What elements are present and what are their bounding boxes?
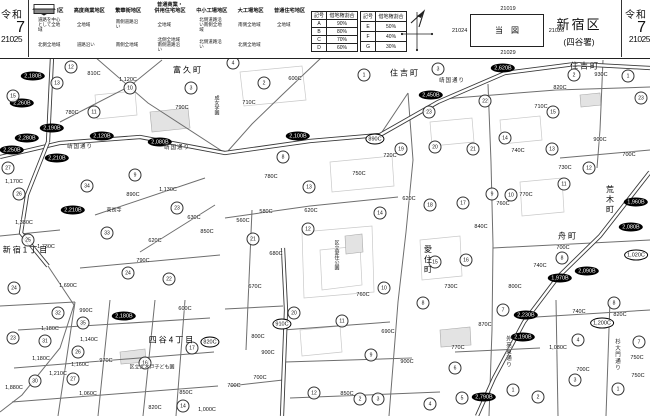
block-number: 12: [583, 162, 596, 175]
block-number: 21: [247, 233, 260, 246]
block-number: 15: [547, 106, 560, 119]
price-label: 2,090B: [575, 267, 599, 276]
block-number: 13: [303, 181, 316, 194]
price-label: 840C: [474, 224, 487, 230]
price-label: 800C: [508, 284, 521, 290]
era-year: 7: [622, 21, 650, 34]
block-number: 26: [13, 188, 26, 201]
block-number: 13: [51, 77, 64, 90]
legend-row-desc: 全地域: [157, 22, 183, 27]
block-number: 10: [378, 282, 391, 295]
price-label: 710C: [534, 104, 547, 110]
price-label: 2,080B: [148, 138, 172, 147]
block-number: 17: [457, 197, 470, 210]
block-number: 24: [8, 282, 21, 295]
ratio-table-header: 記号: [361, 12, 376, 22]
block-number: 14: [499, 132, 512, 145]
block-number: 8: [277, 151, 290, 164]
block-number: 5: [456, 392, 469, 405]
price-label: 580C: [259, 209, 272, 215]
price-label: 760C: [356, 292, 369, 298]
block-number: 12: [65, 61, 78, 74]
legend-district-title: 繁華街地区: [115, 2, 141, 14]
price-label: 1,970B: [548, 274, 572, 283]
block-number: 23: [423, 106, 436, 119]
price-label: 1,880C: [5, 385, 23, 391]
price-label: 620C: [402, 196, 415, 202]
price-label: 740C: [511, 148, 524, 154]
index-north: 21019: [500, 6, 515, 12]
sheet-id-right: 令和 7 21025: [622, 0, 650, 63]
price-label: 750C: [631, 373, 644, 379]
price-label: 900C: [400, 359, 413, 365]
block-number: 26: [72, 346, 85, 359]
price-label: 750C: [630, 355, 643, 361]
block-number: 27: [2, 162, 15, 175]
price-label: 750C: [352, 171, 365, 177]
town-name: 新宿1丁目: [3, 245, 49, 256]
price-label: 1,210C: [49, 371, 67, 377]
block-number: 2: [354, 393, 367, 406]
price-label: 670C: [248, 284, 261, 290]
block-number: 3: [185, 82, 198, 95]
block-number: 2: [258, 77, 271, 90]
legend-column-1: 高度商業地区全地域道路沿い: [70, 2, 109, 56]
legend-district-title: 中小工場地区: [196, 2, 227, 14]
price-label: 820C: [200, 337, 219, 348]
price-label: 1,060C: [79, 391, 97, 397]
price-label: 820C: [148, 405, 161, 411]
legend-column-4: 中小工場地区北側道路沿い南側全地域北側道路沿い: [192, 2, 231, 56]
price-label: 930C: [594, 72, 607, 78]
legend-row-desc: 南側全地域: [238, 22, 264, 27]
block-number: 2: [568, 69, 581, 82]
price-label: 690C: [381, 329, 394, 335]
street-name: 杉大門通り: [613, 339, 621, 372]
ratio-table-cell: G: [361, 42, 376, 52]
price-label: 900C: [593, 137, 606, 143]
block-number: 14: [177, 400, 190, 413]
ratio-table-cell: D: [312, 44, 327, 52]
map-label-layer: 2,180B2,260B2,190B2,280B2,250B2,120B2,08…: [0, 0, 650, 416]
block-number: 16: [139, 357, 152, 370]
price-label: 2,120B: [90, 132, 114, 141]
sheet-number: 21025: [622, 34, 650, 44]
price-label: 1,170C: [5, 179, 23, 185]
price-label: 2,080B: [619, 223, 643, 232]
price-label: 2,620B: [491, 64, 515, 73]
price-label: 820C: [553, 85, 566, 91]
ratio-table-header: 記号: [312, 12, 327, 20]
legend-district-title: 大工場地区: [238, 2, 264, 14]
price-label: 2,100B: [286, 132, 310, 141]
price-label: 1,020C: [624, 250, 648, 261]
price-label: 770C: [451, 345, 464, 351]
block-number: 1: [507, 384, 520, 397]
town-name: 荒木町: [605, 185, 616, 215]
header-divider: [28, 0, 29, 57]
block-number: 34: [81, 180, 94, 193]
poi-name: 区立愛住公園: [334, 240, 341, 270]
block-number: 11: [88, 106, 101, 119]
poi-name: 東長寺: [106, 207, 121, 214]
sheet-header: 令和 7 21025 ビル街地区道路を中心として全地域北側全地域高度商業地区全地…: [0, 0, 650, 59]
price-label: 760C: [496, 201, 509, 207]
legend-row: 北側全地域: [237, 34, 264, 54]
price-label: 2,190B: [511, 333, 535, 342]
price-label: 730C: [444, 284, 457, 290]
legend-row-desc: 全地域: [77, 22, 103, 27]
legend-row: 南側全地域: [115, 34, 142, 54]
price-label: 890C: [126, 192, 139, 198]
price-label: 1,180C: [32, 356, 50, 362]
block-number: 11: [336, 315, 349, 328]
block-number: 25: [22, 234, 35, 247]
price-label: 2,190B: [40, 124, 64, 133]
block-number: 11: [558, 178, 571, 191]
price-label: 560C: [236, 218, 249, 224]
block-number: 23: [635, 92, 648, 105]
legend-row-desc: 南側全地域: [116, 42, 142, 47]
price-label: 1,960B: [624, 198, 648, 207]
block-number: 23: [7, 332, 20, 345]
block-number: 24: [122, 267, 135, 280]
block-number: 9: [486, 188, 499, 201]
block-number: 20: [288, 307, 301, 320]
block-number: 33: [101, 227, 114, 240]
price-label: 780C: [264, 174, 277, 180]
legend-row: 南側道路沿い: [115, 14, 142, 34]
legend-column-6: 普通住宅地区全地域: [270, 2, 309, 56]
price-label: 820C: [613, 312, 626, 318]
price-label: 740C: [533, 263, 546, 269]
town-name: 四谷4丁目: [149, 335, 195, 346]
block-number: 31: [39, 335, 52, 348]
price-label: 700C: [622, 152, 635, 158]
legend-column-3: 普通商業・ 併用住宅地区全地域北側全地域南側道路沿い: [148, 2, 193, 56]
block-number: 12: [308, 387, 321, 400]
price-label: 1,200C: [590, 318, 614, 329]
era-year: 7: [1, 21, 29, 34]
price-label: 810C: [87, 71, 100, 77]
price-label: 2,250B: [0, 146, 24, 155]
price-label: 2,210B: [45, 154, 69, 163]
town-name: 舟町: [558, 231, 578, 242]
block-number: 7: [497, 304, 510, 317]
block-number: 16: [460, 254, 473, 267]
block-number: 1: [358, 69, 371, 82]
price-label: 800C: [251, 334, 264, 340]
block-number: 32: [52, 307, 65, 320]
block-number: 23: [171, 202, 184, 215]
legend-row-desc: 北側道路沿い: [199, 39, 225, 49]
ratio-table-cell: 70%: [327, 36, 358, 44]
district-legend: ビル街地区道路を中心として全地域北側全地域高度商業地区全地域道路沿い繁華街地区南…: [31, 2, 309, 56]
price-label: 1,120C: [119, 77, 137, 83]
ward-name: 新宿区: [548, 14, 610, 33]
price-label: 2,230B: [514, 311, 538, 320]
legend-row: 南側全地域: [237, 14, 264, 34]
price-label: 620C: [148, 238, 161, 244]
block-number: 17: [186, 342, 199, 355]
block-number: 15: [429, 256, 442, 269]
legend-row-desc: 北側全地域: [38, 42, 64, 47]
price-label: 910C: [272, 319, 291, 330]
block-number: 3: [432, 63, 445, 76]
price-label: 730C: [558, 165, 571, 171]
legend-row: 北側全地域南側道路沿い: [156, 34, 183, 54]
price-label: 700C: [576, 367, 589, 373]
price-label: 1,080C: [549, 345, 567, 351]
block-number: 27: [67, 373, 80, 386]
block-number: 8: [417, 297, 430, 310]
block-number: 1: [622, 70, 635, 83]
price-label: 2,180B: [112, 312, 136, 321]
legend-row-desc: 北側全地域南側道路沿い: [157, 37, 183, 52]
ratio-table-cell: 60%: [327, 44, 358, 52]
price-label: 1,180C: [41, 326, 59, 332]
price-label: 970C: [99, 358, 112, 364]
block-number: 9: [365, 349, 378, 362]
town-name: 富久町: [173, 65, 203, 76]
block-number: 22: [479, 95, 492, 108]
ratio-table-cell: E: [361, 22, 376, 32]
ratio-table-cell: C: [312, 36, 327, 44]
block-number: 8: [556, 252, 569, 265]
block-number: 35: [77, 317, 90, 330]
legend-district-title: 普通住宅地区: [274, 2, 305, 14]
legend-symbol-line-icon: [31, 2, 57, 16]
legend-district-title: 高度商業地区: [74, 2, 105, 14]
legend-row-desc: 全地域: [277, 22, 303, 27]
price-label: 790C: [175, 105, 188, 111]
price-label: 600C: [288, 76, 301, 82]
price-label: 890C: [365, 134, 384, 145]
street-name: 靖国通り: [67, 142, 93, 150]
poi-name: 成女学園: [214, 95, 221, 115]
legend-row: 全地域: [276, 14, 303, 34]
index-current-sheet: 当図: [470, 14, 544, 47]
price-label: 1,690C: [59, 283, 77, 289]
town-name: 住吉町: [570, 61, 600, 72]
block-number: 7: [633, 336, 646, 349]
price-label: 1,130C: [159, 187, 177, 193]
block-number: 19: [395, 143, 408, 156]
price-label: 780C: [65, 110, 78, 116]
legend-row: 道路沿い: [76, 34, 103, 54]
block-number: 6: [449, 362, 462, 375]
price-label: 770C: [519, 192, 532, 198]
price-label: 790C: [136, 258, 149, 264]
price-label: 2,450B: [419, 91, 443, 100]
price-label: 870C: [478, 322, 491, 328]
legend-row-desc: 道路沿い: [77, 42, 103, 47]
price-label: 680C: [269, 251, 282, 257]
price-label: 1,160C: [71, 362, 89, 368]
legend-row: 北側道路沿い: [198, 34, 225, 54]
block-number: 14: [374, 207, 387, 220]
price-label: 2,210B: [61, 206, 85, 215]
ratio-table-cell: B: [312, 28, 327, 36]
legend-column-2: 繁華街地区南側道路沿い南側全地域: [109, 2, 148, 56]
price-label: 600C: [178, 306, 191, 312]
ratio-table-cell: F: [361, 32, 376, 42]
price-label: 2,280B: [15, 134, 39, 143]
leasehold-ratio-table-1: 記号借地権割合A90%B80%C70%D60%: [311, 11, 358, 52]
price-label: 620C: [304, 208, 317, 214]
legend-row: 北側道路沿い南側全地域: [198, 14, 225, 34]
price-label: 990C: [79, 308, 92, 314]
block-number: 18: [424, 199, 437, 212]
ratio-table-cell: A: [312, 20, 327, 28]
ratio-table-header: 借地権割合: [327, 12, 358, 20]
price-label: 700C: [227, 383, 240, 389]
price-label: 2,260B: [10, 99, 34, 108]
leasehold-ratio-tables: 記号借地権割合A90%B80%C70%D60%記号借地権割合E50%F40%G3…: [311, 11, 407, 52]
block-number: 21: [467, 143, 480, 156]
ratio-table-cell: 90%: [327, 20, 358, 28]
legend-row: 北側全地域: [37, 34, 64, 54]
price-label: 1,140C: [80, 337, 98, 343]
block-number: 13: [546, 143, 559, 156]
street-name: 靖国通り: [164, 143, 190, 151]
legend-row-desc: 北側道路沿い南側全地域: [199, 17, 225, 32]
block-number: 12: [302, 223, 315, 236]
price-label: 2,180B: [21, 72, 45, 81]
legend-row: 全地域: [156, 14, 183, 34]
legend-row-desc: 北側全地域: [238, 42, 264, 47]
ratio-table-cell: 80%: [327, 28, 358, 36]
legend-row: 全地域: [76, 14, 103, 34]
block-number: 10: [505, 189, 518, 202]
block-number: 8: [608, 297, 621, 310]
price-label: 1,730C: [37, 244, 55, 250]
legend-row-desc: 南側道路沿い: [116, 19, 142, 29]
block-number: 3: [372, 393, 385, 406]
legend-column-5: 大工場地区南側全地域北側全地域: [231, 2, 270, 56]
price-label: 700C: [253, 375, 266, 381]
price-label: 850C: [340, 391, 353, 397]
block-number: 30: [29, 375, 42, 388]
street-name: 靖国通り: [439, 76, 465, 84]
tax-office-name: (四谷署): [548, 36, 610, 48]
block-number: 1: [612, 383, 625, 396]
index-south: 21029: [500, 50, 515, 56]
block-number: 9: [129, 169, 142, 182]
price-label: 740C: [572, 309, 585, 315]
price-label: 710C: [242, 100, 255, 106]
ward-title: 新宿区 (四谷署): [548, 14, 610, 48]
town-name: 愛住町: [423, 245, 434, 275]
block-number: 2: [532, 391, 545, 404]
legend-row: 道路を中心として全地域: [37, 14, 64, 34]
block-number: 4: [572, 334, 585, 347]
street-name: 外苑東通り: [504, 336, 512, 369]
price-label: 2,790B: [472, 393, 496, 402]
town-name: 住吉町: [390, 68, 420, 79]
price-label: 850C: [179, 390, 192, 396]
index-west: 21024: [452, 28, 467, 34]
price-label: 850C: [200, 229, 213, 235]
block-number: 10: [124, 82, 137, 95]
poi-name: 区立大木戸子ども園: [129, 364, 174, 371]
block-number: 4: [424, 398, 437, 411]
price-label: 720C: [383, 153, 396, 159]
price-label: 900C: [261, 350, 274, 356]
legend-row-desc: 道路を中心として全地域: [38, 17, 64, 32]
block-number: 22: [163, 273, 176, 286]
sheet-id-left: 令和 7 21025: [1, 0, 29, 63]
price-label: 700C: [556, 245, 569, 251]
rosenka-map-sheet: 2,180B2,260B2,190B2,280B2,250B2,120B2,08…: [0, 0, 650, 416]
price-label: 630C: [187, 215, 200, 221]
legend-district-title: 普通商業・ 併用住宅地区: [154, 2, 185, 14]
block-number: 3: [569, 374, 582, 387]
price-label: 1,000C: [198, 407, 216, 413]
block-number: 20: [429, 141, 442, 154]
price-label: 1,380C: [15, 220, 33, 226]
block-number: 15: [7, 90, 20, 103]
